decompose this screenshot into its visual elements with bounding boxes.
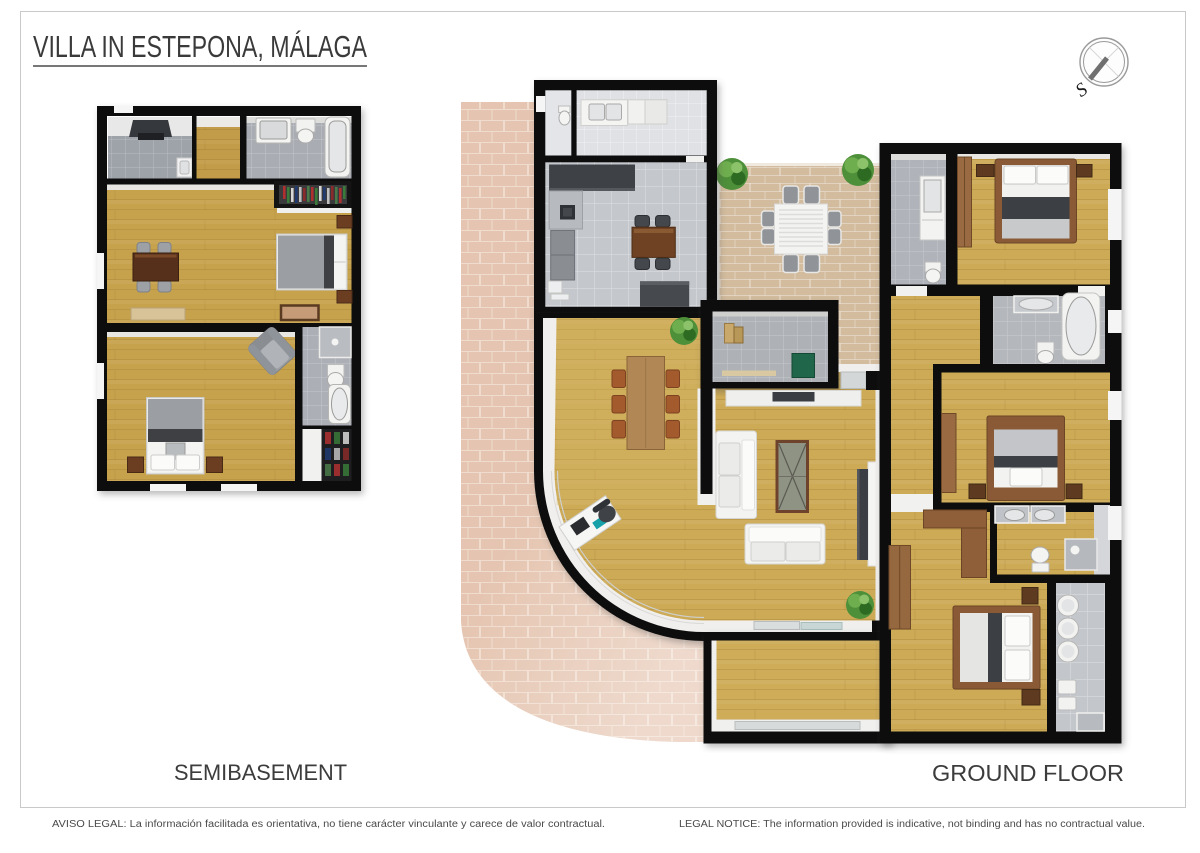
svg-text:LEGAL NOTICE: The information: LEGAL NOTICE: The information provided i… xyxy=(679,819,1145,830)
svg-text:AVISO LEGAL: La información fa: AVISO LEGAL: La información facilitada e… xyxy=(52,819,605,830)
svg-text:SEMIBASEMENT: SEMIBASEMENT xyxy=(174,760,347,785)
svg-text:GROUND FLOOR: GROUND FLOOR xyxy=(932,760,1124,786)
svg-text:VILLA IN ESTEPONA, MÁLAGA: VILLA IN ESTEPONA, MÁLAGA xyxy=(33,29,367,64)
